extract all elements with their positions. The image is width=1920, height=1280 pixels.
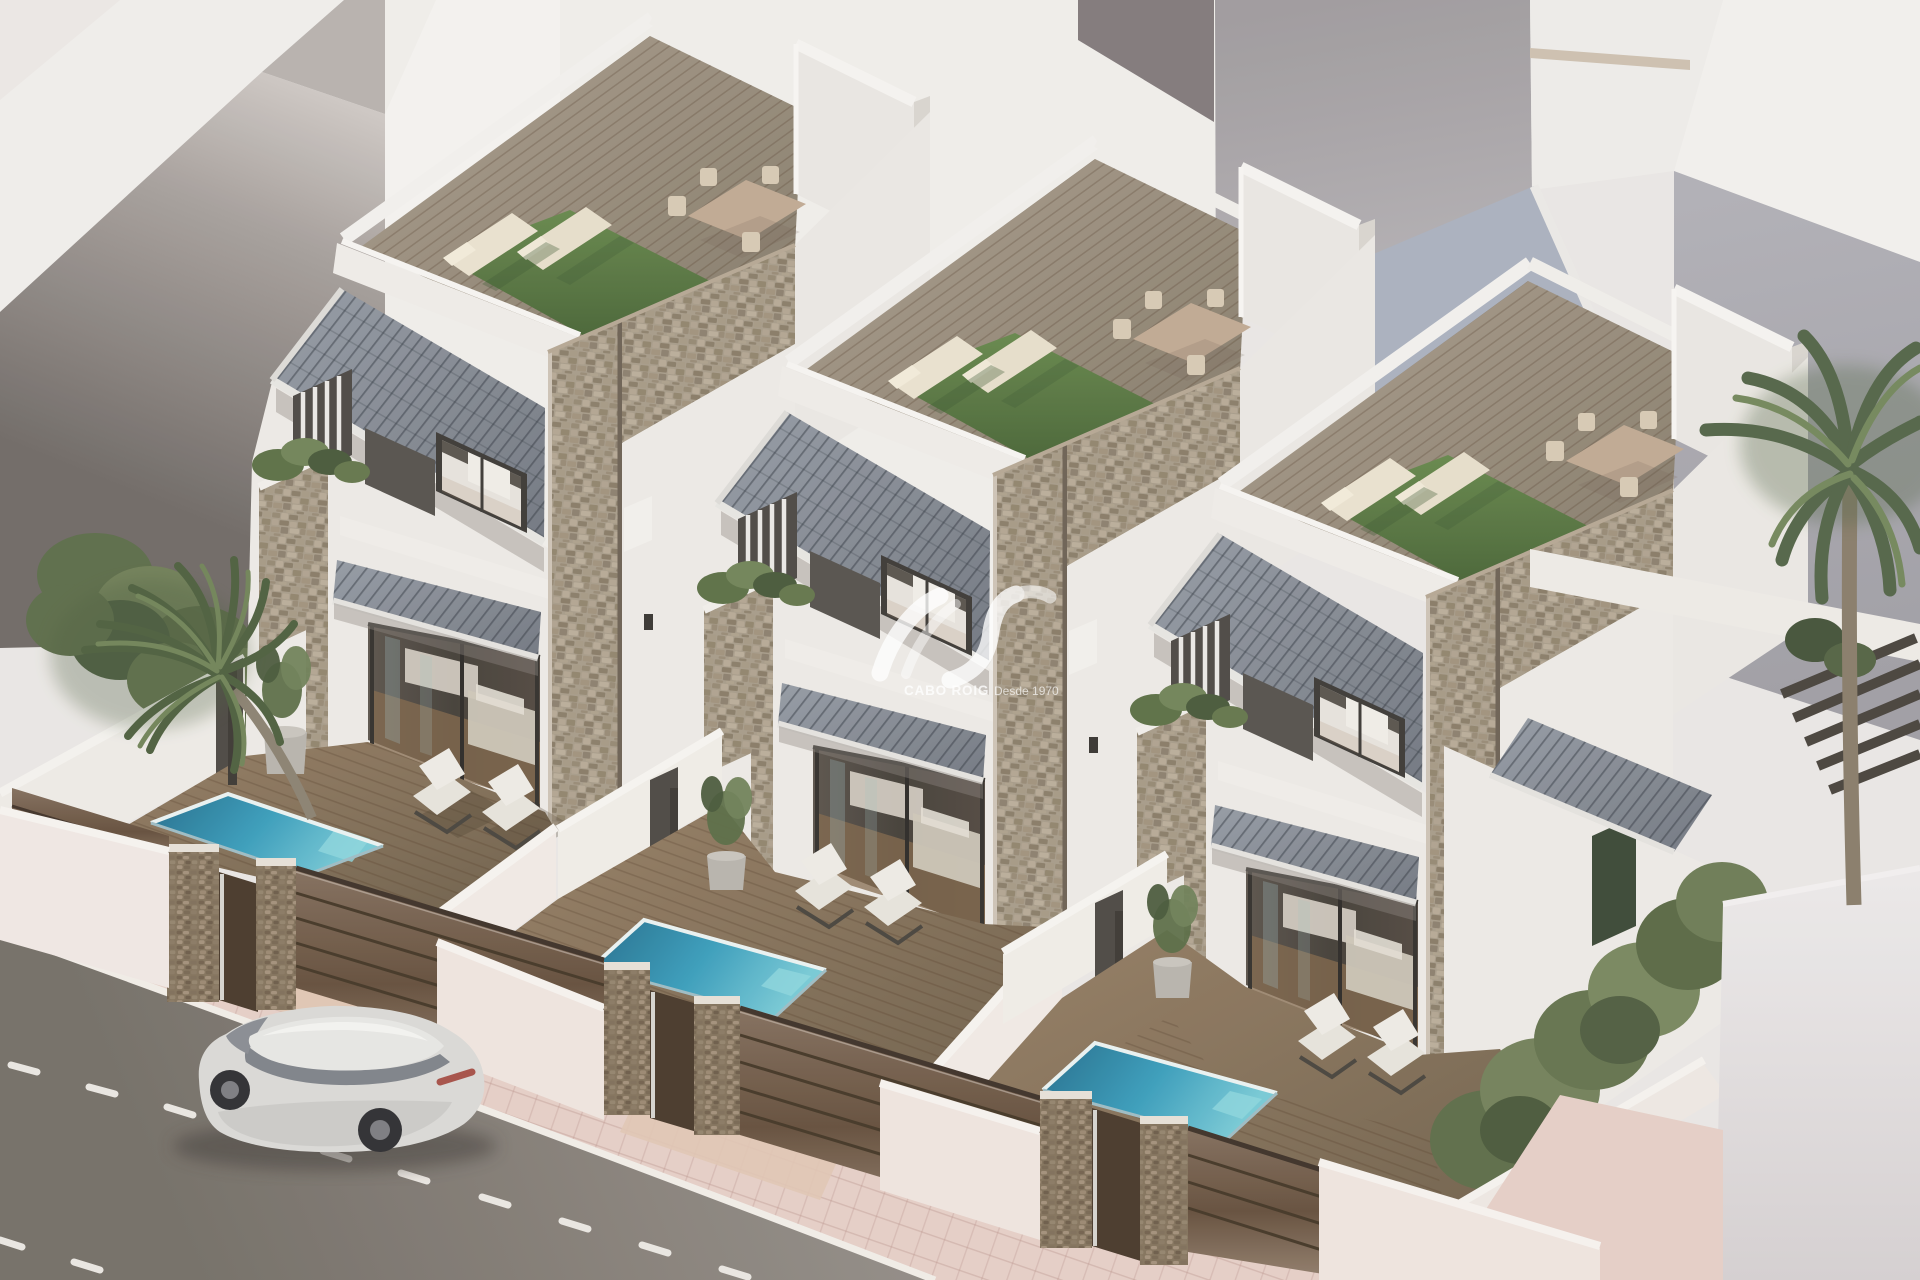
svg-text:Desde 1970: Desde 1970 — [994, 684, 1059, 698]
svg-text:CABO ROIG: CABO ROIG — [904, 683, 989, 698]
